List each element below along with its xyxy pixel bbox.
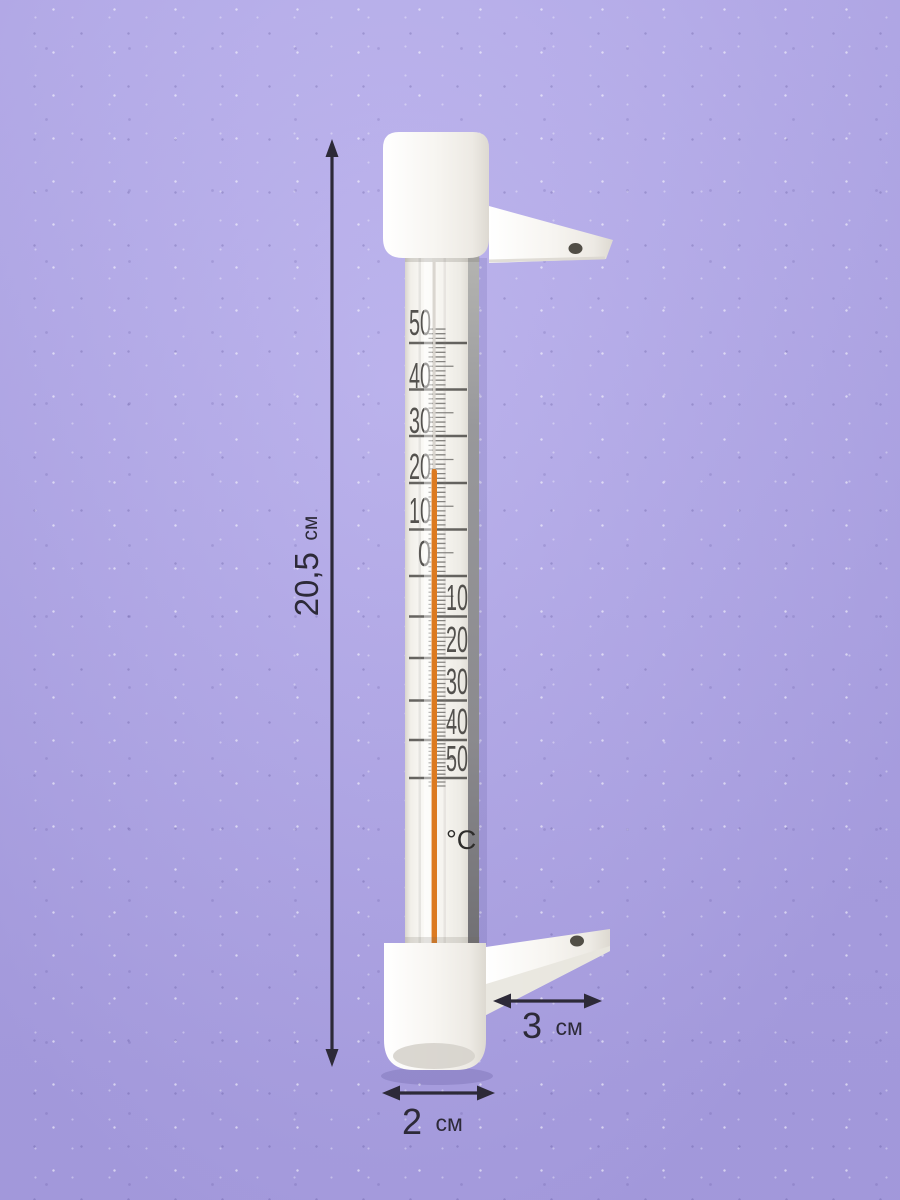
scene-canvas: 504030201001020304050 °C bbox=[0, 0, 900, 1200]
diameter-arrow-right-icon bbox=[477, 1086, 495, 1101]
glass-edge-left bbox=[419, 256, 422, 944]
height-arrow-down-icon bbox=[326, 1049, 339, 1067]
diameter-arrow-left-icon bbox=[382, 1086, 400, 1101]
unit-label: °C bbox=[446, 825, 476, 855]
top-screw-hole bbox=[569, 243, 583, 254]
bracket-length-arrow-right-icon bbox=[584, 994, 602, 1009]
bottom-cap-face bbox=[393, 1043, 475, 1069]
scale-number: 20 bbox=[446, 619, 468, 660]
height-value: 20,5 bbox=[288, 552, 325, 616]
capillary-tube bbox=[433, 262, 436, 469]
scale-number: 50 bbox=[446, 738, 468, 779]
top-bracket bbox=[489, 206, 613, 263]
top-cap bbox=[383, 132, 489, 258]
height-unit: см bbox=[299, 516, 322, 541]
scale-number: 10 bbox=[446, 577, 468, 618]
bracket-length-unit: см bbox=[555, 1014, 582, 1040]
diameter-dimension-label: 2 см bbox=[402, 1101, 463, 1142]
glass-highlight bbox=[424, 256, 432, 944]
thermometer: 504030201001020304050 °C bbox=[383, 132, 613, 1070]
bracket-length-dimension-label: 3 см bbox=[522, 1005, 583, 1046]
top-bracket-arm bbox=[489, 206, 613, 263]
diameter-value: 2 bbox=[402, 1101, 422, 1142]
product-photo: 504030201001020304050 °C bbox=[0, 0, 900, 1200]
bracket-length-dimension: 3 см bbox=[493, 994, 602, 1047]
tube-wall-shadow bbox=[479, 258, 487, 945]
liquid-column bbox=[431, 469, 437, 948]
diameter-unit: см bbox=[435, 1110, 462, 1136]
tube: 504030201001020304050 °C bbox=[405, 255, 480, 948]
bracket-length-value: 3 bbox=[522, 1005, 542, 1046]
scale-number: 30 bbox=[446, 661, 468, 702]
height-dimension-label: 20,5 см bbox=[288, 516, 325, 617]
bottom-screw-hole bbox=[570, 936, 584, 947]
height-arrow-up-icon bbox=[326, 139, 339, 157]
scale-number: 40 bbox=[446, 701, 468, 742]
height-dimension: 20,5 см bbox=[288, 139, 339, 1067]
bottom-cap-contact-shadow bbox=[405, 937, 480, 944]
diameter-dimension: 2 см bbox=[382, 1086, 495, 1143]
